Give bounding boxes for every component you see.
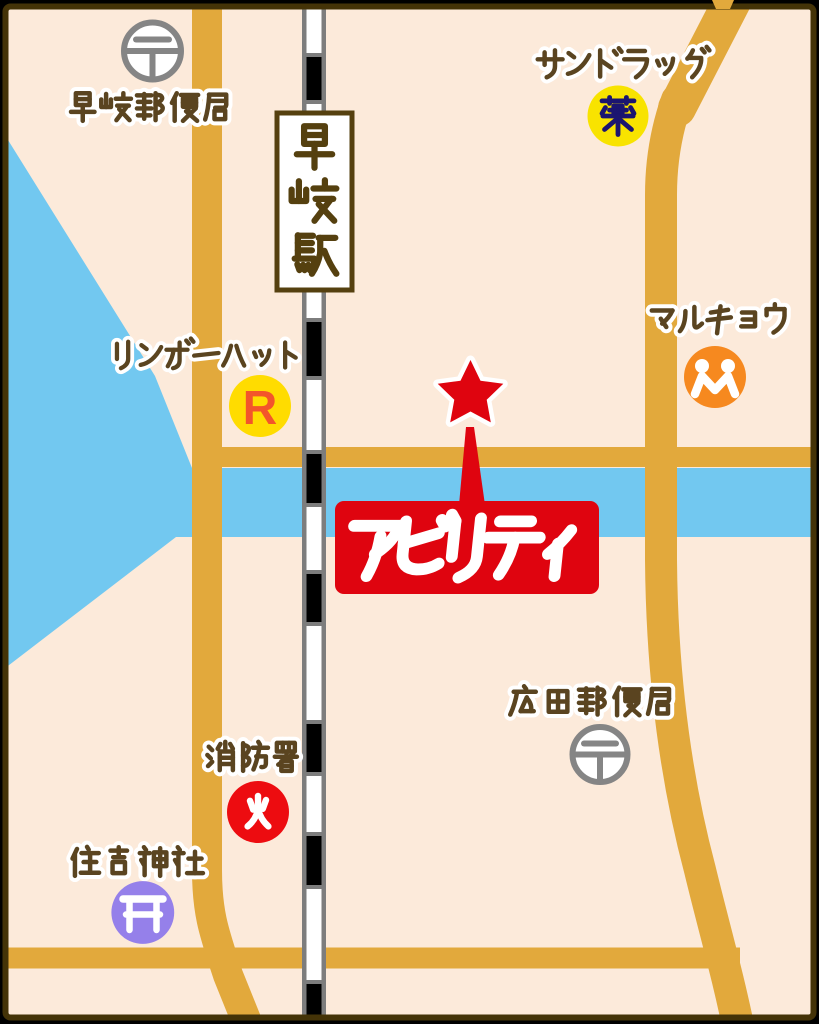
svg-text:R: R <box>243 382 278 435</box>
